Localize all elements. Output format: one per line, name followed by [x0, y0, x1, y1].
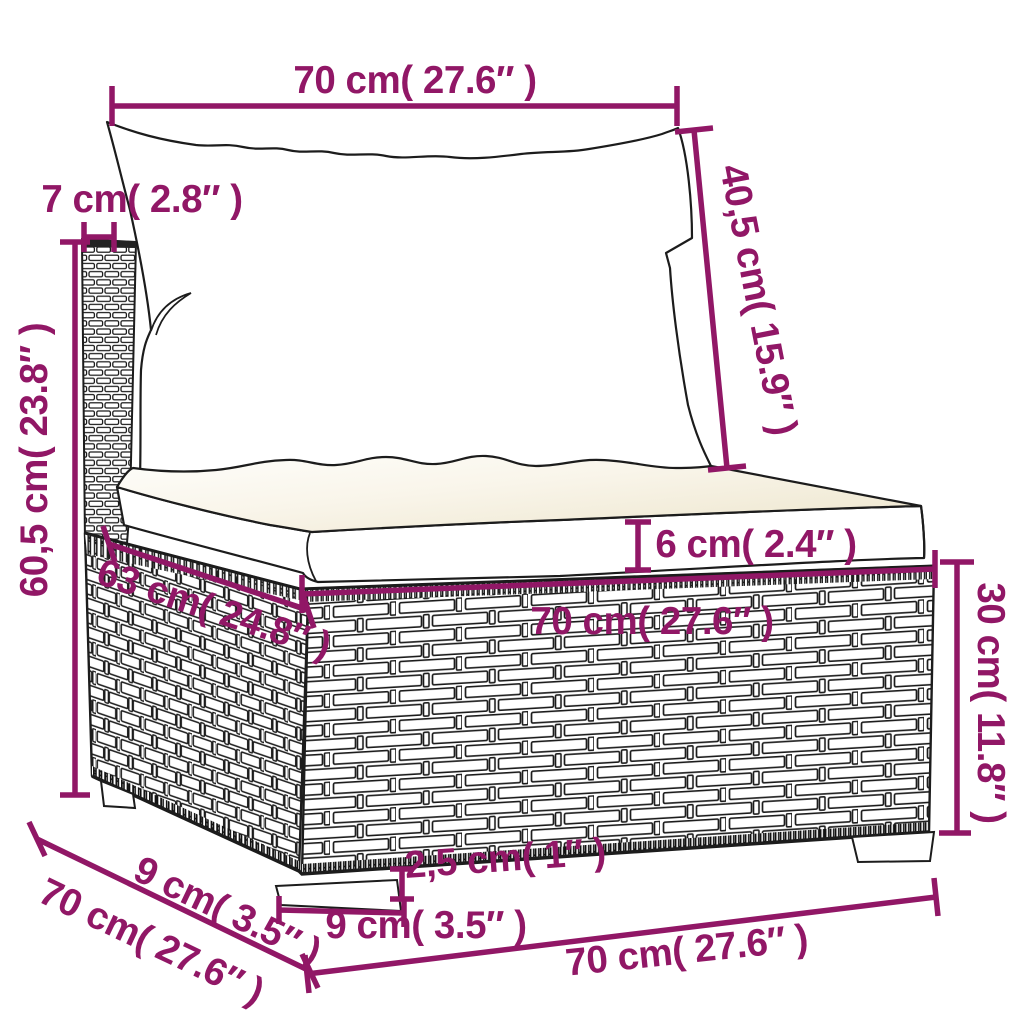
svg-text:30 cm( 11.8″ ): 30 cm( 11.8″ ) — [969, 582, 1012, 823]
svg-text:7 cm( 2.8″ ): 7 cm( 2.8″ ) — [41, 178, 242, 221]
svg-text:6 cm( 2.4″ ): 6 cm( 2.4″ ) — [655, 523, 856, 566]
svg-text:70 cm( 27.6″ ): 70 cm( 27.6″ ) — [530, 600, 773, 643]
svg-text:70 cm( 27.6″ ): 70 cm( 27.6″ ) — [293, 59, 536, 102]
svg-text:60,5 cm( 23.8″ ): 60,5 cm( 23.8″ ) — [13, 323, 56, 597]
svg-text:9 cm( 3.5″ ): 9 cm( 3.5″ ) — [325, 904, 526, 947]
